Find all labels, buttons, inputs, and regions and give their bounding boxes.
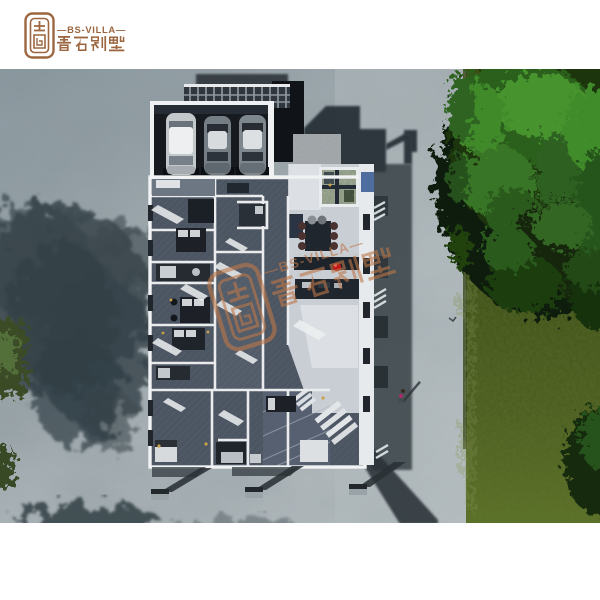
svg-text:—BS-VILLA—: —BS-VILLA—	[57, 24, 126, 35]
